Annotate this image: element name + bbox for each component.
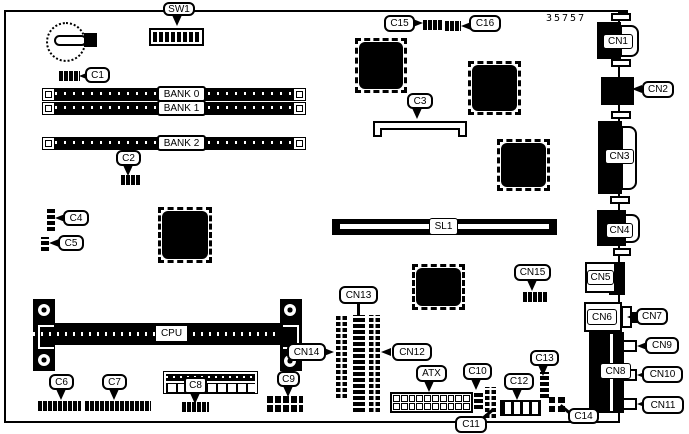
pointer-c9	[283, 386, 293, 397]
connector-c4	[47, 207, 55, 231]
edge-tab	[611, 111, 631, 119]
cpu-retention-left	[38, 325, 54, 349]
atx-pin	[455, 403, 462, 410]
label-bank1: BANK 1	[157, 100, 206, 116]
atx-pin	[424, 395, 431, 402]
connector-c12	[500, 400, 541, 416]
label-cn12: CN12	[392, 343, 432, 361]
pointer-sw1	[172, 15, 182, 26]
pointer-c6	[56, 389, 66, 400]
dip-switch-segments	[153, 32, 200, 42]
connector-cn14	[336, 316, 347, 398]
label-c9: C9	[277, 371, 300, 387]
connector-c2	[121, 175, 140, 185]
battery-key-tip	[84, 33, 97, 47]
atx-pin	[393, 403, 400, 410]
socket-c3-foot	[373, 128, 382, 137]
label-cpu: CPU	[155, 325, 188, 342]
label-cn8: CN8	[600, 363, 631, 379]
atx-pin	[416, 403, 423, 410]
label-c4: C4	[63, 210, 89, 226]
socket-c3-bar	[373, 121, 467, 130]
label-c7: C7	[102, 374, 127, 390]
mounting-hole-icon	[38, 354, 50, 366]
chip-qfp-3	[468, 61, 521, 115]
label-c12: C12	[504, 373, 534, 390]
label-sw1: SW1	[163, 2, 195, 16]
connector-c7	[85, 401, 151, 411]
pointer-c8	[190, 393, 200, 404]
atx-pin	[401, 403, 408, 410]
slot-clip-icon	[43, 138, 55, 149]
slot-clip-icon	[43, 89, 55, 100]
label-bank2: BANK 2	[157, 135, 206, 151]
connector-c1	[59, 71, 80, 81]
label-cn4: CN4	[606, 223, 633, 238]
connector-c16	[445, 21, 461, 31]
socket-c3-foot	[458, 128, 467, 137]
label-c16: C16	[469, 15, 501, 32]
atx-pin	[463, 403, 470, 410]
atx-power-connector	[390, 392, 473, 413]
connector-c8-module	[163, 371, 258, 394]
connector-c9	[267, 396, 303, 412]
battery-key-icon	[54, 35, 87, 46]
label-c15: C15	[384, 15, 415, 32]
connector-c15	[423, 20, 442, 30]
atx-pin	[409, 403, 416, 410]
pointer-c7	[109, 389, 119, 400]
label-atx: ATX	[416, 365, 447, 382]
part-number: 35757	[546, 13, 586, 24]
pointer-c2	[123, 165, 133, 176]
atx-pin	[448, 395, 455, 402]
label-cn2: CN2	[642, 81, 674, 98]
chip-qfp-2	[355, 38, 407, 93]
label-cn13: CN13	[339, 286, 378, 304]
dip-switch-sw1	[149, 28, 204, 46]
label-c13: C13	[530, 350, 559, 366]
pointer-atx	[424, 381, 434, 392]
mounting-hole-icon	[38, 304, 50, 316]
pointer-cn2	[632, 85, 642, 93]
label-c3: C3	[407, 93, 433, 109]
label-c2: C2	[116, 150, 141, 166]
atx-pin	[440, 403, 447, 410]
stem-cn13	[357, 303, 360, 316]
label-cn14: CN14	[287, 343, 326, 361]
atx-pin	[440, 395, 447, 402]
label-cn15: CN15	[514, 264, 551, 281]
chip-qfp-4	[497, 139, 550, 191]
atx-pin	[463, 395, 470, 402]
chip-qfp-5	[412, 264, 465, 310]
pointer-c10	[471, 379, 481, 390]
slot-clip-icon	[293, 103, 305, 114]
motherboard-diagram: 35757 SW1 C1 BANK 0 BANK 1 BANK 2 C2 C4 …	[0, 0, 689, 434]
slot-clip-icon	[293, 89, 305, 100]
label-c10: C10	[463, 363, 492, 380]
connector-c10	[474, 392, 483, 409]
pointer-c12	[512, 389, 522, 400]
atx-pin	[432, 395, 439, 402]
connector-c6	[38, 401, 81, 411]
label-c5: C5	[58, 235, 84, 251]
label-cn6: CN6	[587, 309, 617, 325]
label-c1: C1	[85, 67, 110, 83]
edge-tab	[610, 196, 630, 204]
c8-pad-row	[166, 383, 255, 393]
atx-pin	[424, 403, 431, 410]
label-sl1: SL1	[429, 218, 458, 235]
chip-qfp-1	[158, 207, 212, 263]
slot-clip-icon	[43, 103, 55, 114]
atx-pin	[401, 395, 408, 402]
label-cn10: CN10	[642, 366, 683, 383]
atx-pin	[409, 395, 416, 402]
label-cn3: CN3	[605, 149, 634, 164]
connector-cn11	[622, 398, 637, 410]
label-cn1: CN1	[603, 34, 633, 49]
atx-pin	[432, 403, 439, 410]
connector-cn2	[601, 77, 634, 105]
label-cn11: CN11	[642, 396, 684, 414]
c8-pin-row	[166, 374, 255, 381]
atx-pin	[455, 395, 462, 402]
atx-pin	[393, 395, 400, 402]
atx-pin	[448, 403, 455, 410]
connector-cn15	[523, 292, 547, 302]
atx-pin	[416, 395, 423, 402]
mounting-hole-icon	[284, 304, 296, 316]
edge-tab	[613, 248, 631, 256]
label-c14: C14	[568, 408, 599, 424]
edge-tab	[611, 59, 631, 67]
label-c8: C8	[184, 377, 207, 394]
pointer-c13	[538, 365, 548, 376]
label-c6: C6	[49, 374, 74, 390]
label-cn9: CN9	[645, 337, 679, 354]
connector-cn13	[353, 315, 365, 412]
pointer-cn15	[527, 280, 537, 291]
connector-c5	[41, 237, 49, 251]
label-c11: C11	[455, 416, 487, 433]
connector-cn9	[622, 340, 637, 352]
pointer-c3	[412, 108, 422, 119]
pointer-cn12	[381, 348, 391, 356]
slot-clip-icon	[293, 138, 305, 149]
label-cn5: CN5	[587, 270, 614, 285]
label-cn7: CN7	[636, 308, 668, 325]
edge-tab	[611, 13, 631, 21]
connector-cn12	[369, 315, 380, 412]
